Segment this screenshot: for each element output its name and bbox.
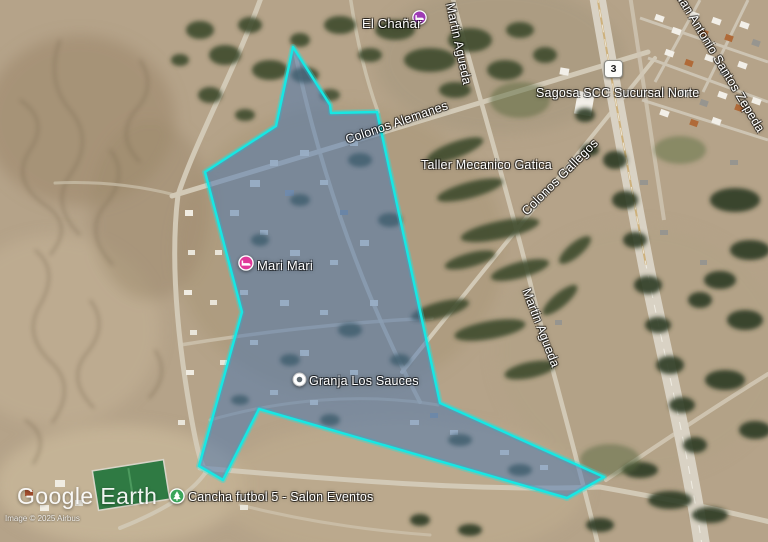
- lodging-pin-icon[interactable]: [238, 255, 254, 271]
- imagery-copyright: Image © 2025 Airbus: [5, 514, 80, 523]
- satellite-map-canvas[interactable]: Colonos Alemanes Colonos Gallegos Martin…: [0, 0, 768, 542]
- place-label-el-chanar[interactable]: El Chañar: [362, 16, 422, 31]
- place-label-mari-mari[interactable]: Mari Mari: [257, 258, 313, 273]
- route-3-number: 3: [611, 63, 617, 75]
- generic-place-pin-icon[interactable]: [292, 372, 307, 387]
- satellite-imagery: [0, 0, 768, 542]
- google-earth-logo: Google Earth: [17, 483, 157, 510]
- place-label-taller[interactable]: Taller Mecanico Gatica: [421, 158, 552, 172]
- place-label-granja[interactable]: Granja Los Sauces: [309, 374, 419, 388]
- place-label-cancha[interactable]: Cancha futbol 5 - Salon Eventos: [188, 490, 373, 504]
- park-tree-pin-icon[interactable]: [169, 488, 185, 504]
- place-label-sagosa[interactable]: Sagosa SCC Sucursal Norte: [536, 86, 699, 100]
- route-3-shield: 3: [604, 60, 623, 78]
